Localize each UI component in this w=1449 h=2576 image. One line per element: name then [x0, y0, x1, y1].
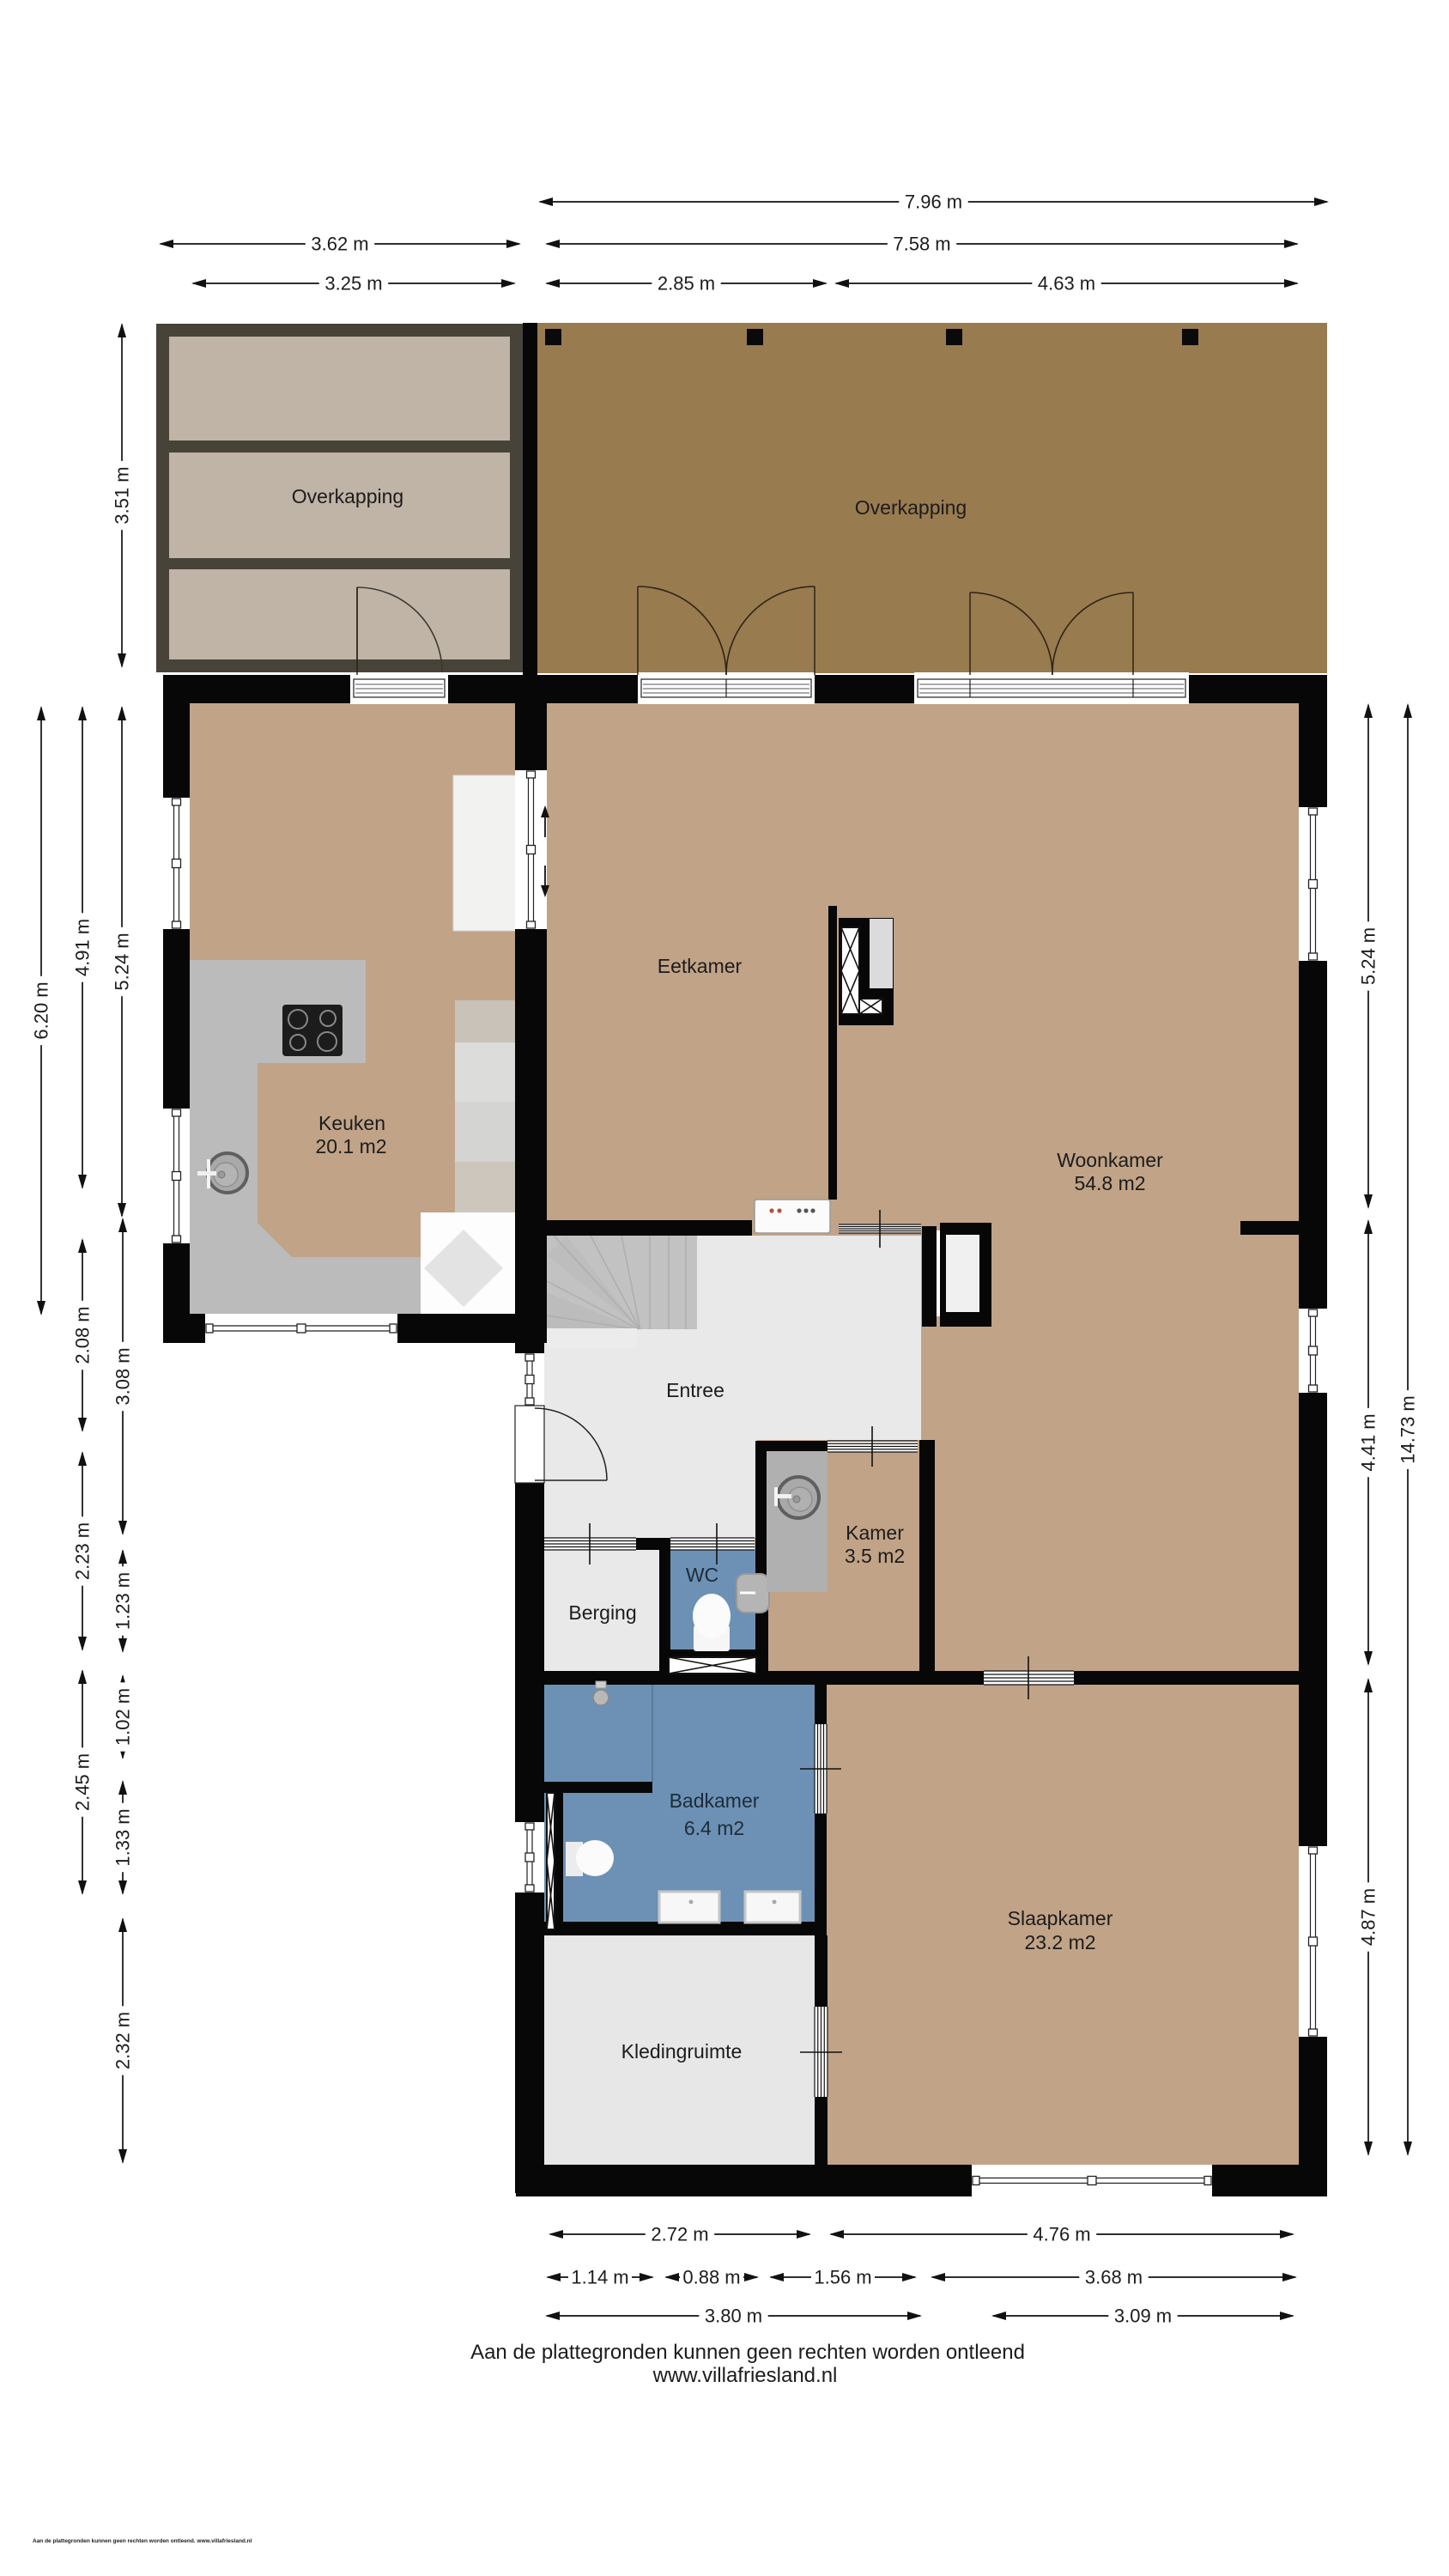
svg-text:Kledingruimte: Kledingruimte — [621, 2040, 743, 2063]
svg-text:2.85 m: 2.85 m — [658, 273, 715, 295]
svg-text:4.41 m: 4.41 m — [1358, 1413, 1379, 1471]
svg-text:www.villafriesland.nl: www.villafriesland.nl — [652, 2364, 838, 2387]
svg-text:7.96 m: 7.96 m — [905, 191, 962, 213]
svg-text:4.87 m: 4.87 m — [1358, 1888, 1379, 1946]
svg-text:6.20 m: 6.20 m — [31, 981, 52, 1039]
svg-text:Aan de plattegronden kunnen ge: Aan de plattegronden kunnen geen rechten… — [470, 2341, 1025, 2364]
svg-text:Keuken: Keuken — [318, 1112, 385, 1134]
svg-text:1.02 m: 1.02 m — [112, 1688, 134, 1746]
svg-text:3.5 m2: 3.5 m2 — [845, 1545, 905, 1567]
svg-text:3.25 m: 3.25 m — [324, 273, 382, 295]
svg-text:4.76 m: 4.76 m — [1033, 2224, 1090, 2245]
svg-text:Overkapping: Overkapping — [292, 485, 403, 507]
svg-text:3.09 m: 3.09 m — [1114, 2306, 1172, 2327]
svg-text:5.24 m: 5.24 m — [1358, 927, 1379, 985]
svg-text:Eetkamer: Eetkamer — [658, 955, 743, 977]
svg-text:Overkapping: Overkapping — [855, 496, 967, 519]
svg-text:Woonkamer: Woonkamer — [1057, 1149, 1163, 1171]
svg-text:Slaapkamer: Slaapkamer — [1008, 1907, 1113, 1929]
svg-text:2.72 m: 2.72 m — [651, 2224, 708, 2245]
svg-text:3.08 m: 3.08 m — [112, 1347, 134, 1405]
svg-text:3.80 m: 3.80 m — [705, 2306, 762, 2327]
svg-text:7.58 m: 7.58 m — [893, 234, 950, 255]
svg-text:1.23 m: 1.23 m — [112, 1572, 134, 1630]
svg-text:3.68 m: 3.68 m — [1085, 2267, 1143, 2288]
svg-text:4.91 m: 4.91 m — [72, 919, 94, 976]
svg-text:2.08 m: 2.08 m — [72, 1306, 94, 1364]
svg-text:Berging: Berging — [568, 1601, 636, 1624]
svg-text:6.4 m2: 6.4 m2 — [684, 1817, 744, 1839]
svg-text:4.63 m: 4.63 m — [1038, 273, 1095, 295]
svg-text:0.88 m: 0.88 m — [682, 2267, 740, 2288]
svg-text:5.24 m: 5.24 m — [112, 933, 133, 990]
svg-text:20.1 m2: 20.1 m2 — [315, 1135, 386, 1157]
svg-text:54.8 m2: 54.8 m2 — [1074, 1172, 1145, 1194]
svg-text:23.2 m2: 23.2 m2 — [1024, 1931, 1095, 1953]
svg-text:2.32 m: 2.32 m — [112, 2012, 134, 2069]
svg-text:Badkamer: Badkamer — [670, 1789, 760, 1812]
svg-text:1.56 m: 1.56 m — [814, 2267, 871, 2288]
svg-text:14.73 m: 14.73 m — [1397, 1395, 1419, 1464]
svg-text:Aan de plattegronden kunnen ge: Aan de plattegronden kunnen geen rechten… — [33, 2538, 252, 2544]
svg-text:Kamer: Kamer — [846, 1522, 904, 1544]
svg-text:2.23 m: 2.23 m — [72, 1522, 94, 1580]
svg-text:1.33 m: 1.33 m — [112, 1808, 134, 1866]
svg-text:Entree: Entree — [666, 1379, 724, 1401]
svg-text:3.51 m: 3.51 m — [112, 466, 133, 524]
svg-text:3.62 m: 3.62 m — [311, 234, 368, 255]
svg-text:1.14 m: 1.14 m — [571, 2267, 628, 2288]
svg-text:WC: WC — [686, 1564, 718, 1586]
svg-text:2.45 m: 2.45 m — [72, 1753, 94, 1811]
